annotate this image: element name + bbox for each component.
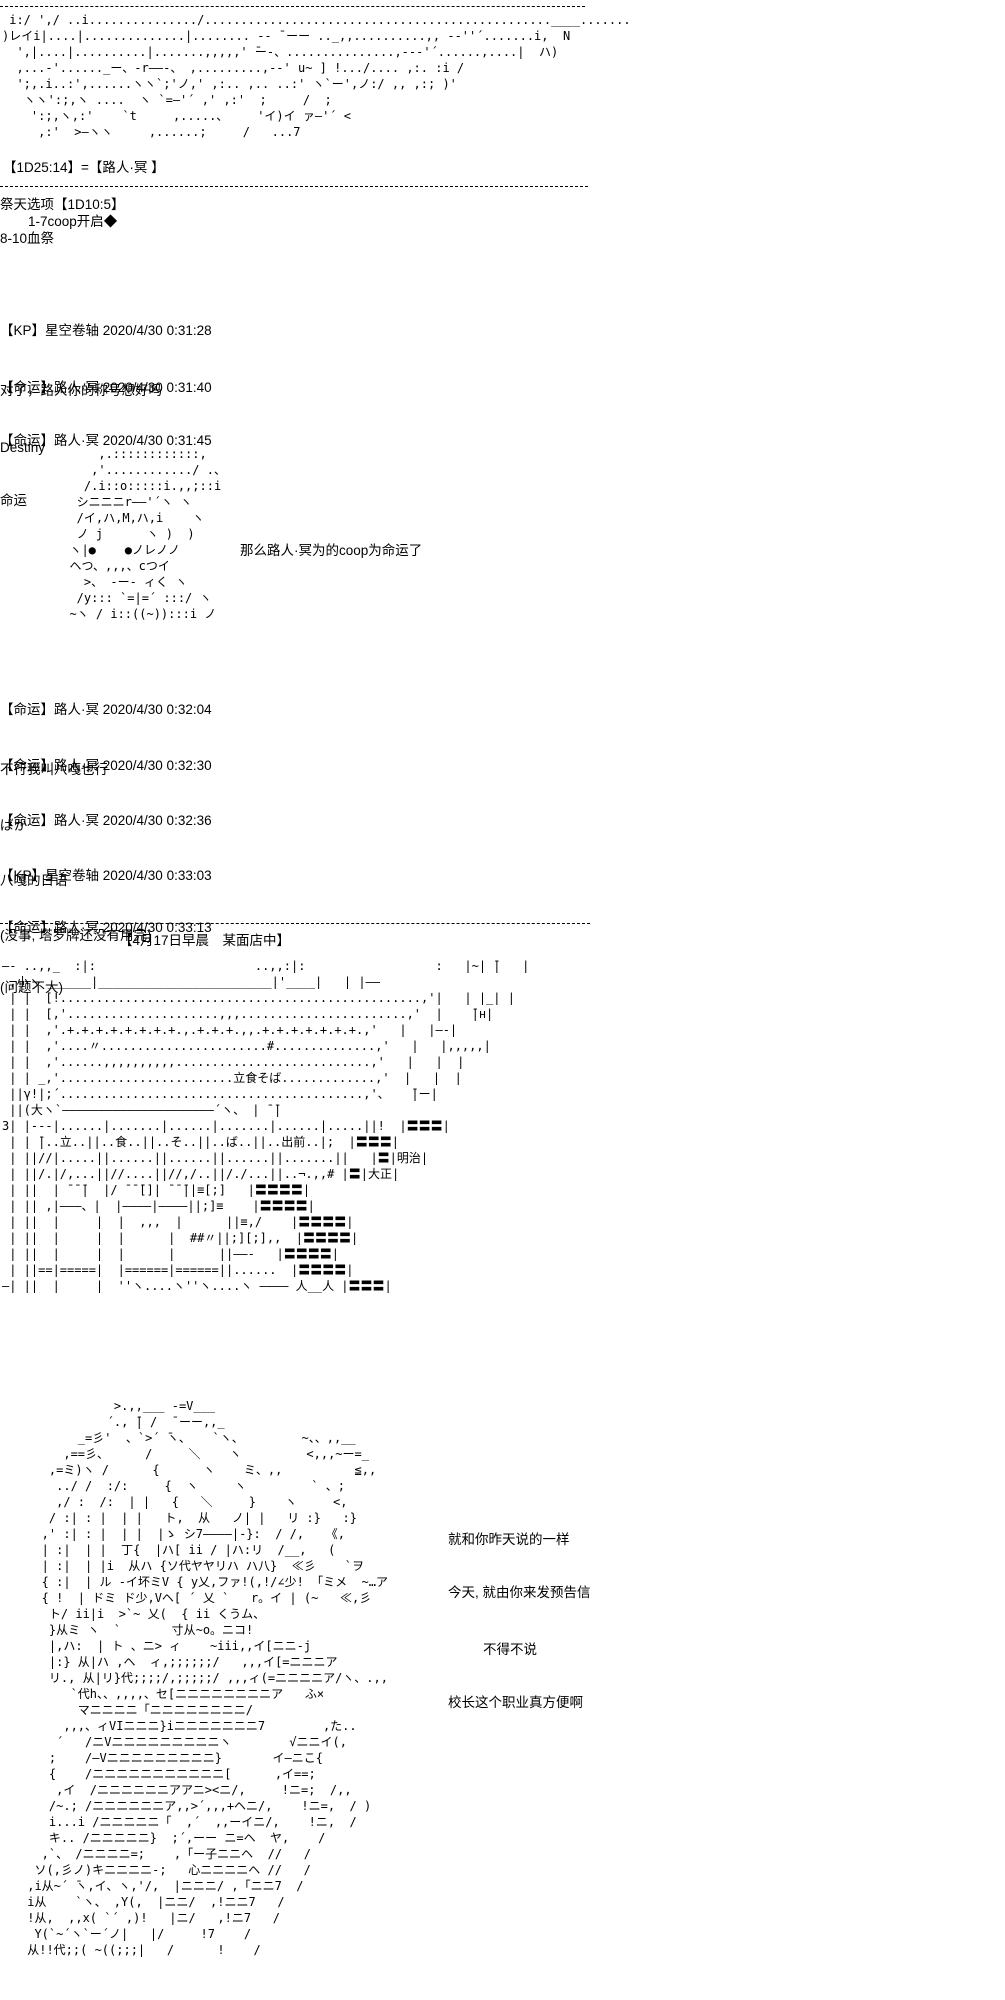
section-divider [0,186,588,187]
ascii-art-soba-shop: ―- ..,,_ :|: ..,,:|: : |~| ̄| | ,小ヽ ____… [2,958,529,1294]
ascii-art-pupil-character: >.,,___ -=V___ ´., ̄| / ̄ ーー,,_ _=彡' 、`>… [20,1398,388,1958]
ritual-option-blood: 8-10血祭 [0,230,54,247]
chibi-dialogue-text: 那么路人·冥为的coop为命运了 [240,539,422,559]
thread-log-page: i:/ ',/ ..i.............../.............… [0,0,1005,2000]
section-divider [0,6,585,7]
pupil-dialogue-line-1: 就和你昨天说的一样 [448,1528,570,1548]
scene-header: 【4月17日早晨 某面店中】 [119,932,290,949]
pupil-dialogue-line-3: 不得不说 [483,1638,537,1658]
section-divider [0,923,590,924]
ascii-art-top-character: i:/ ',/ ..i.............../.............… [2,12,631,140]
pupil-dialogue-line-4: 校长这个职业真方便啊 [448,1691,583,1711]
ritual-roll-title: 祭天选项【1D10:5】 [0,196,125,213]
pupil-dialogue-line-2: 今天, 就由你来发预告信 [448,1581,591,1601]
dice-naming-result: 【1D25:14】=【路人·冥 】 [3,159,165,176]
ritual-option-coop: 1-7coop开启◆ [28,213,117,230]
ascii-art-chibi-character: ,.::::::::::::, ,'............/ .、 /.i::… [55,446,226,622]
